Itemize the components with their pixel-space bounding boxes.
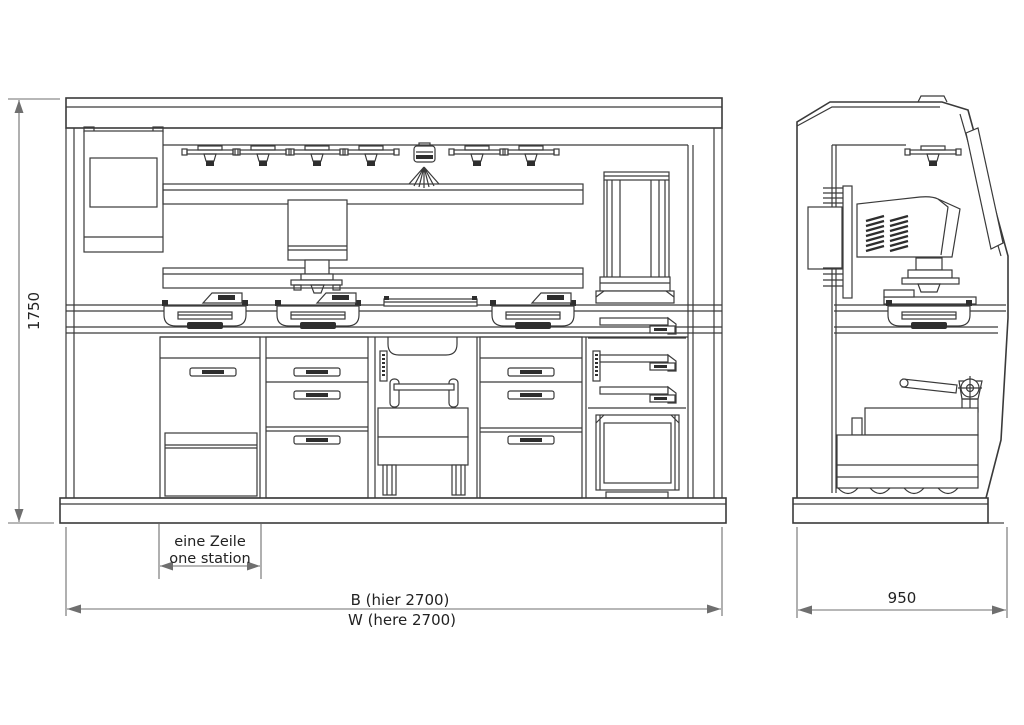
side-tool-station bbox=[905, 146, 961, 166]
service-cart-bay bbox=[375, 337, 477, 498]
dim-station-label-de: eine Zeile bbox=[174, 534, 246, 550]
spray-nozzle-icon bbox=[409, 143, 439, 188]
side-instrument-head bbox=[857, 197, 960, 292]
dim-width-label-en: W (here 2700) bbox=[348, 611, 456, 629]
cabinet-drawers-left bbox=[266, 337, 368, 498]
front-view bbox=[60, 98, 726, 523]
dim-height: 1750 bbox=[8, 99, 60, 523]
cabinet-drawers-right bbox=[480, 337, 582, 498]
tower-module bbox=[596, 172, 674, 303]
tray-rack bbox=[586, 318, 686, 498]
technical-drawing-page: 1750 eine Zeile one station B (hier 2700… bbox=[0, 0, 1024, 725]
dim-width: B (hier 2700) W (here 2700) bbox=[66, 527, 722, 629]
gantry-rails bbox=[163, 184, 583, 288]
side-bench-station bbox=[884, 290, 976, 329]
technical-drawing: 1750 eine Zeile one station B (hier 2700… bbox=[0, 0, 1024, 725]
dim-depth: 950 bbox=[797, 527, 1007, 618]
dim-height-label: 1750 bbox=[25, 292, 43, 330]
dim-depth-label: 950 bbox=[888, 589, 917, 607]
side-base bbox=[793, 498, 1004, 523]
monitor-panel bbox=[84, 127, 163, 252]
front-plinth bbox=[60, 498, 726, 523]
side-service-cart bbox=[837, 376, 982, 494]
dim-station: eine Zeile one station bbox=[159, 524, 261, 579]
side-wall-brackets bbox=[808, 186, 852, 298]
cabinet-door-left bbox=[160, 337, 260, 498]
side-view bbox=[793, 96, 1008, 523]
tool-stations bbox=[182, 146, 559, 166]
pipetting-carriage bbox=[288, 200, 347, 293]
dim-station-label-en: one station bbox=[169, 551, 251, 567]
dim-width-label-de: B (hier 2700) bbox=[351, 591, 450, 609]
